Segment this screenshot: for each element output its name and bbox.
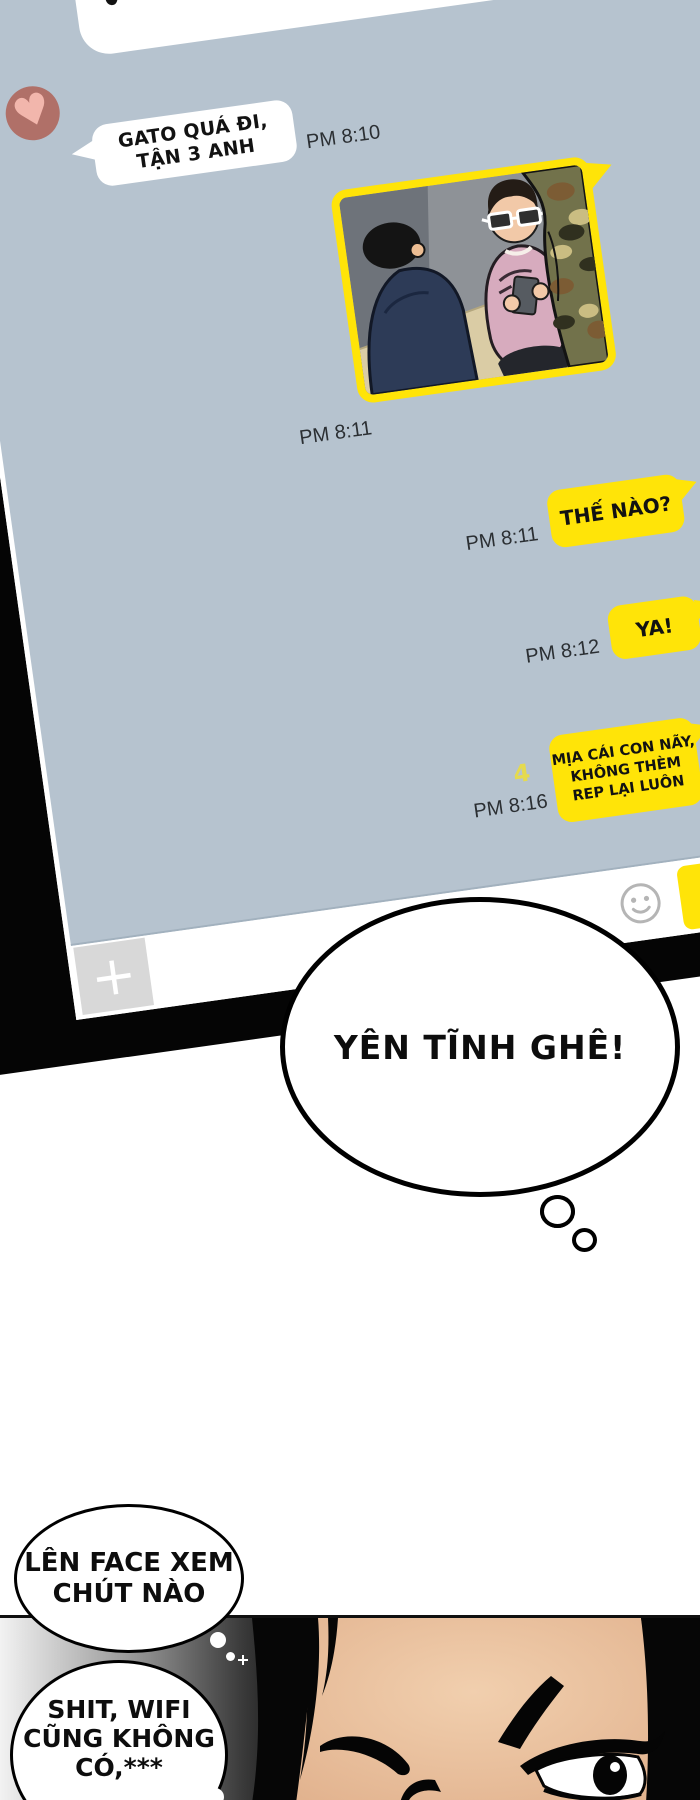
- cutoff-text-mark: [104, 0, 118, 6]
- photo-illustration: [339, 164, 609, 395]
- photo-message[interactable]: [330, 155, 618, 404]
- thought-dot: [572, 1228, 597, 1252]
- comic-page: ♥ GATO QUÁ ĐI, TẬN 3 ANH PM 8:10: [0, 0, 700, 1800]
- attach-button[interactable]: +: [73, 938, 154, 1015]
- speech-text: CHÚT NÀO: [53, 1579, 206, 1610]
- speech-text: LÊN FACE XEM: [24, 1548, 234, 1579]
- smiley-icon: [617, 880, 664, 927]
- thought-bubble: YÊN TĨNH GHÊ!: [280, 897, 680, 1197]
- received-bubble: GATO QUÁ ĐI, TẬN 3 ANH: [90, 98, 299, 188]
- sent-bubble: THẾ NÀO?: [545, 473, 686, 549]
- timestamp: PM 8:11: [438, 523, 540, 560]
- speech-text: CÓ,***: [75, 1753, 163, 1782]
- timestamp: PM 8:12: [499, 636, 601, 673]
- heart-icon: ♥: [8, 85, 58, 137]
- sent-bubble: MỊA CÁI CON NÃY, KHÔNG THÈM REP LẠI LUÔN: [548, 716, 700, 823]
- thought-trail-dot: [226, 1652, 235, 1661]
- thought-trail-dot: [206, 1788, 224, 1800]
- speech-text: CŨNG KHÔNG: [23, 1724, 215, 1753]
- thought-dot: [540, 1195, 575, 1228]
- phone-chat-screenshot: ♥ GATO QUÁ ĐI, TẬN 3 ANH PM 8:10: [0, 0, 700, 1020]
- sparkle-dot: [238, 1655, 248, 1665]
- emoticon-button[interactable]: [617, 880, 664, 927]
- timestamp: PM 8:11: [271, 417, 373, 454]
- sent-bubble: YA!: [606, 595, 700, 661]
- chat-area: ♥ GATO QUÁ ĐI, TẬN 3 ANH PM 8:10: [0, 0, 700, 946]
- message-text: THẾ NÀO?: [548, 490, 684, 532]
- thought-trail-dot: [210, 1632, 226, 1648]
- contact-avatar: ♥: [2, 83, 63, 144]
- unread-count: 4: [512, 759, 532, 789]
- send-button[interactable]: [676, 850, 700, 930]
- thought-bubble-text: YÊN TĨNH GHÊ!: [334, 1028, 626, 1067]
- timestamp: PM 8:10: [305, 121, 382, 154]
- partial-message-bubble: [64, 0, 632, 58]
- speech-text: SHIT, WIFI: [47, 1695, 190, 1724]
- message-text: YA!: [608, 610, 700, 646]
- timestamp: PM 8:16: [445, 790, 549, 827]
- speech-bubble-face: LÊN FACE XEM CHÚT NÀO: [14, 1504, 244, 1653]
